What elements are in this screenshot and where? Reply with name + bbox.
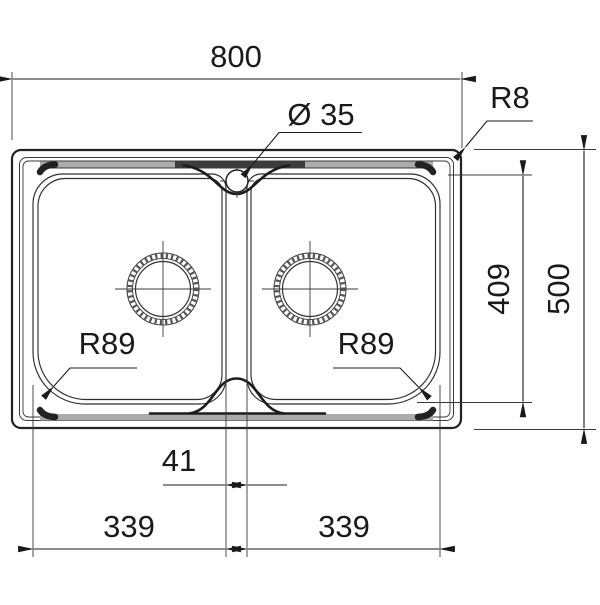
leader-line-r8 [466, 121, 534, 147]
dimension-right-bowl-width: 339 [248, 509, 439, 549]
dim-text-500: 500 [541, 263, 576, 315]
callout-text-r8: R8 [490, 80, 530, 115]
callout-text-tap-hole: Ø 35 [287, 97, 354, 132]
rim-band-bottom [40, 414, 433, 421]
drawing-canvas: 800 500 409 41 339 339 R8 [0, 0, 600, 600]
dimension-overall-width: 800 [12, 39, 462, 148]
dim-text-339-left: 339 [103, 509, 155, 544]
callout-text-r89-right: R89 [338, 326, 395, 361]
dim-text-409: 409 [481, 263, 516, 315]
dim-text-339-right: 339 [318, 509, 370, 544]
sink-body [12, 150, 461, 428]
dim-text-800: 800 [210, 39, 262, 74]
dim-text-41: 41 [162, 443, 196, 478]
callout-rim-corner-radius: R8 [466, 80, 534, 147]
sink-technical-drawing: 800 500 409 41 339 339 R8 [0, 0, 600, 600]
dimension-center-web: 41 [162, 443, 287, 485]
callout-text-r89-left: R89 [79, 326, 136, 361]
tap-hole-circle [226, 170, 248, 192]
dimension-left-bowl-width: 339 [34, 509, 225, 549]
